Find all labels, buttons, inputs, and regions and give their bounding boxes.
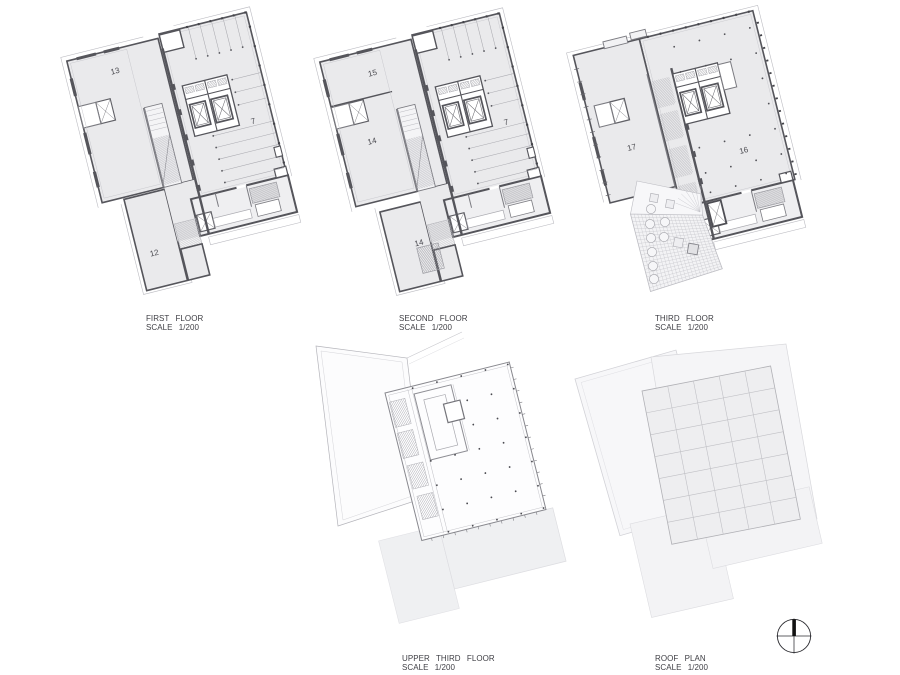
- svg-text:SCALE 1/200: SCALE 1/200: [399, 323, 453, 332]
- svg-text:SCALE 1/200: SCALE 1/200: [146, 323, 200, 332]
- svg-text:SCALE 1/200: SCALE 1/200: [655, 663, 709, 672]
- svg-text:SCALE 1/200: SCALE 1/200: [655, 323, 709, 332]
- svg-text:UPPER THIRD FLOOR: UPPER THIRD FLOOR: [402, 654, 495, 663]
- svg-text:THIRD FLOOR: THIRD FLOOR: [655, 314, 714, 323]
- svg-text:SCALE 1/200: SCALE 1/200: [402, 663, 456, 672]
- svg-text:SECOND FLOOR: SECOND FLOOR: [399, 314, 468, 323]
- svg-text:FIRST FLOOR: FIRST FLOOR: [146, 314, 203, 323]
- svg-text:ROOF PLAN: ROOF PLAN: [655, 654, 706, 663]
